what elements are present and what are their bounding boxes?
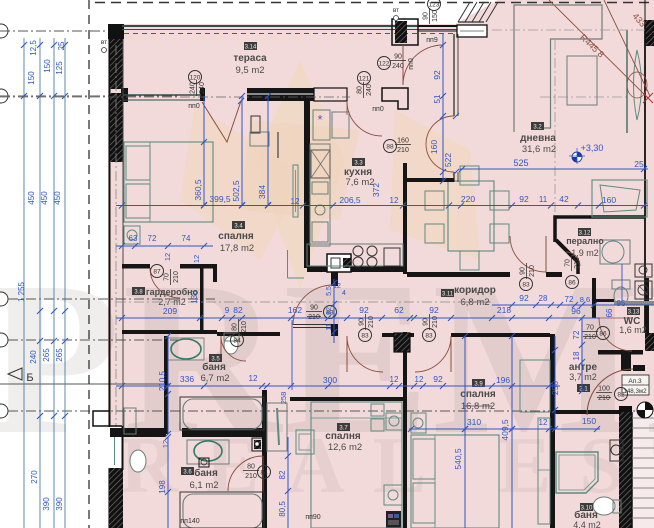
- svg-text:12: 12: [192, 255, 201, 263]
- svg-text:90: 90: [394, 54, 402, 61]
- svg-text:+3,30: +3,30: [581, 143, 604, 153]
- svg-text:70: 70: [586, 325, 594, 332]
- svg-text:пп0: пп0: [188, 103, 200, 110]
- svg-text:95: 95: [617, 299, 626, 308]
- svg-text:пп0: пп0: [372, 106, 384, 113]
- svg-text:210: 210: [598, 395, 610, 402]
- svg-text:84: 84: [260, 470, 268, 477]
- svg-text:82: 82: [278, 470, 287, 479]
- svg-text:90: 90: [423, 12, 430, 20]
- svg-text:372: 372: [371, 183, 381, 197]
- svg-text:150: 150: [27, 71, 36, 85]
- svg-text:92: 92: [326, 307, 333, 315]
- svg-text:525: 525: [513, 158, 528, 168]
- svg-text:3,7 m2: 3,7 m2: [569, 372, 597, 382]
- svg-text:150: 150: [432, 10, 439, 22]
- svg-text:196: 196: [496, 375, 510, 385]
- svg-text:360,5: 360,5: [193, 179, 203, 201]
- svg-text:399,5: 399,5: [209, 194, 231, 204]
- svg-text:3.4: 3.4: [234, 224, 243, 230]
- svg-text:*: *: [317, 112, 322, 127]
- svg-text:83: 83: [425, 333, 433, 340]
- svg-text:450: 450: [27, 191, 36, 205]
- svg-text:баня: баня: [194, 467, 218, 479]
- svg-text:240: 240: [366, 84, 373, 96]
- svg-text:пп9: пп9: [426, 37, 438, 44]
- svg-text:вт: вт: [101, 39, 107, 46]
- svg-text:12: 12: [390, 196, 399, 205]
- svg-text:540,5: 540,5: [453, 448, 463, 470]
- svg-text:240: 240: [392, 63, 404, 70]
- svg-text:6,1 m2: 6,1 m2: [189, 480, 218, 491]
- svg-text:198: 198: [158, 480, 167, 494]
- svg-text:12: 12: [539, 418, 548, 427]
- svg-text:80: 80: [247, 464, 255, 471]
- svg-text:1,6 m2: 1,6 m2: [619, 325, 647, 335]
- svg-text:1,9 m2: 1,9 m2: [571, 248, 599, 258]
- svg-text:210: 210: [397, 147, 409, 154]
- svg-text:90: 90: [423, 318, 430, 326]
- svg-text:12: 12: [415, 375, 424, 384]
- svg-text:210,5: 210,5: [158, 370, 167, 391]
- svg-text:72: 72: [565, 295, 574, 304]
- svg-text:90: 90: [359, 318, 366, 326]
- svg-text:80: 80: [357, 86, 364, 94]
- svg-text:спалня: спалня: [218, 231, 254, 242]
- svg-text:210: 210: [584, 334, 596, 341]
- svg-text:160: 160: [602, 195, 616, 205]
- svg-text:121: 121: [359, 76, 370, 83]
- svg-text:300: 300: [323, 375, 337, 385]
- svg-text:210: 210: [574, 257, 581, 269]
- svg-text:74: 74: [182, 234, 191, 243]
- svg-text:3.13: 3.13: [628, 310, 640, 316]
- svg-text:3.2: 3.2: [533, 125, 542, 131]
- svg-text:82: 82: [233, 305, 243, 315]
- svg-text:коридор: коридор: [454, 285, 496, 296]
- svg-text:336: 336: [180, 374, 194, 384]
- svg-text:80,5: 80,5: [278, 501, 287, 517]
- svg-text:83: 83: [361, 333, 369, 340]
- svg-text:дневна: дневна: [520, 133, 556, 144]
- svg-text:62: 62: [394, 305, 404, 315]
- svg-text:390: 390: [55, 497, 64, 511]
- svg-text:вт: вт: [393, 7, 399, 14]
- svg-text:72: 72: [572, 330, 581, 339]
- svg-text:409,5: 409,5: [500, 419, 510, 441]
- svg-text:310: 310: [467, 417, 481, 427]
- svg-text:12: 12: [249, 374, 258, 383]
- svg-text:80: 80: [232, 323, 239, 331]
- svg-text:66: 66: [605, 308, 614, 317]
- svg-text:83: 83: [522, 282, 530, 289]
- svg-text:42: 42: [559, 194, 569, 204]
- svg-text:240: 240: [190, 82, 197, 94]
- svg-text:25: 25: [57, 41, 66, 50]
- svg-text:31,6 m2: 31,6 m2: [522, 144, 556, 155]
- svg-text:70: 70: [565, 259, 572, 267]
- svg-text:спалня: спалня: [325, 431, 361, 442]
- svg-text:270: 270: [30, 470, 39, 484]
- svg-text:3.14: 3.14: [245, 45, 257, 51]
- svg-text:162: 162: [288, 305, 302, 315]
- svg-text:спалня: спалня: [460, 389, 496, 400]
- svg-text:8,6: 8,6: [580, 295, 590, 304]
- svg-text:6,8 m2: 6,8 m2: [460, 297, 489, 308]
- svg-text:17,8 m2: 17,8 m2: [220, 243, 254, 254]
- svg-text:100: 100: [598, 386, 610, 393]
- svg-text:160: 160: [429, 140, 439, 154]
- svg-text:87: 87: [153, 269, 161, 276]
- svg-text:51: 51: [433, 94, 442, 103]
- svg-text:240: 240: [29, 350, 38, 364]
- svg-text:92: 92: [519, 293, 529, 303]
- svg-text:450: 450: [40, 191, 49, 205]
- svg-text:3.6: 3.6: [183, 470, 192, 476]
- svg-text:84: 84: [233, 338, 241, 345]
- svg-text:3.11: 3.11: [442, 292, 454, 298]
- svg-text:9: 9: [225, 306, 230, 315]
- svg-text:4: 4: [342, 290, 346, 297]
- svg-text:Б: Б: [26, 372, 33, 384]
- svg-text:160: 160: [397, 138, 409, 145]
- svg-text:баня: баня: [202, 361, 226, 373]
- svg-text:12,5: 12,5: [29, 40, 38, 56]
- svg-text:12: 12: [333, 283, 341, 290]
- svg-text:92: 92: [519, 194, 529, 204]
- svg-text:258: 258: [279, 392, 288, 405]
- svg-text:пп0: пп0: [408, 58, 415, 70]
- svg-text:90: 90: [520, 267, 527, 275]
- svg-text:220: 220: [461, 194, 475, 204]
- svg-text:265: 265: [55, 348, 64, 362]
- svg-text:450: 450: [53, 191, 62, 205]
- svg-text:123: 123: [429, 2, 440, 9]
- svg-text:92: 92: [359, 305, 369, 315]
- svg-text:265: 265: [42, 348, 51, 362]
- svg-text:250: 250: [550, 381, 560, 395]
- svg-text:92: 92: [433, 374, 443, 384]
- svg-text:218: 218: [497, 305, 511, 315]
- svg-text:210: 210: [245, 473, 257, 480]
- svg-text:130: 130: [190, 290, 199, 304]
- svg-text:384: 384: [257, 185, 267, 199]
- svg-text:522: 522: [443, 153, 453, 167]
- svg-text:240: 240: [199, 82, 206, 94]
- svg-text:92: 92: [432, 70, 442, 80]
- svg-text:70: 70: [164, 273, 171, 281]
- svg-text:150: 150: [582, 416, 596, 426]
- svg-text:120: 120: [190, 75, 201, 82]
- svg-text:210: 210: [529, 265, 536, 277]
- svg-text:перално: перално: [566, 236, 604, 246]
- svg-text:210: 210: [173, 271, 180, 283]
- svg-text:Ап.3: Ап.3: [628, 378, 642, 385]
- svg-text:502,5: 502,5: [231, 180, 241, 202]
- svg-text:63: 63: [129, 234, 138, 243]
- svg-text:18: 18: [572, 351, 581, 360]
- svg-text:12: 12: [163, 253, 172, 261]
- svg-text:125: 125: [55, 61, 64, 75]
- svg-text:3.8: 3.8: [134, 290, 143, 296]
- svg-text:9,5 m2: 9,5 m2: [235, 65, 264, 76]
- svg-text:3.3: 3.3: [354, 161, 363, 167]
- svg-text:86: 86: [568, 280, 576, 287]
- svg-text:11: 11: [539, 195, 548, 204]
- svg-text:88: 88: [386, 144, 394, 151]
- svg-text:25: 25: [634, 159, 644, 169]
- svg-text:150: 150: [43, 59, 52, 73]
- svg-text:390: 390: [42, 497, 51, 511]
- svg-text:12: 12: [390, 375, 399, 384]
- svg-text:12: 12: [291, 197, 300, 206]
- svg-text:90: 90: [310, 305, 318, 312]
- svg-text:206,5: 206,5: [339, 195, 361, 205]
- svg-text:12,6 m2: 12,6 m2: [328, 442, 362, 453]
- svg-text:6,7 m2: 6,7 m2: [200, 373, 229, 384]
- svg-text:тераса: тераса: [233, 53, 267, 64]
- svg-text:16,8 m2: 16,8 m2: [461, 401, 495, 412]
- svg-text:72: 72: [148, 234, 157, 243]
- svg-text:210: 210: [241, 321, 248, 333]
- svg-text:4,4 m2: 4,4 m2: [573, 520, 601, 528]
- svg-text:пп140: пп140: [180, 518, 199, 525]
- svg-text:92: 92: [429, 305, 439, 315]
- svg-text:82: 82: [617, 392, 625, 399]
- svg-text:209: 209: [163, 306, 177, 316]
- svg-text:11: 11: [326, 323, 333, 330]
- svg-text:пп90: пп90: [305, 514, 320, 521]
- svg-text:12: 12: [161, 440, 170, 448]
- svg-text:86: 86: [599, 331, 607, 338]
- svg-text:28: 28: [539, 294, 548, 303]
- svg-text:5,5: 5,5: [326, 286, 333, 296]
- svg-text:1 255: 1 255: [17, 281, 26, 302]
- svg-text:122: 122: [379, 61, 390, 68]
- svg-text:3.9: 3.9: [474, 382, 483, 388]
